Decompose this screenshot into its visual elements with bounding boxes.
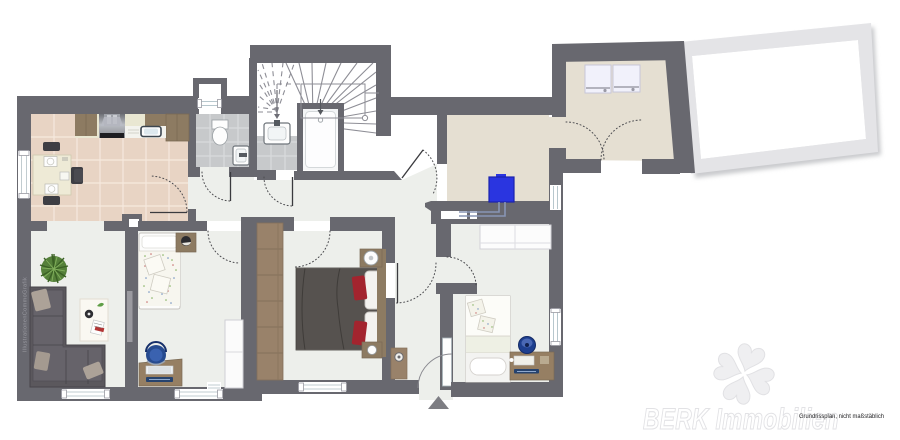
svg-text:IllustrationenCommoGrafik: IllustrationenCommoGrafik <box>23 277 29 352</box>
svg-text:Grundrissplan, nicht maßstäbli: Grundrissplan, nicht maßstäblich <box>799 413 884 420</box>
